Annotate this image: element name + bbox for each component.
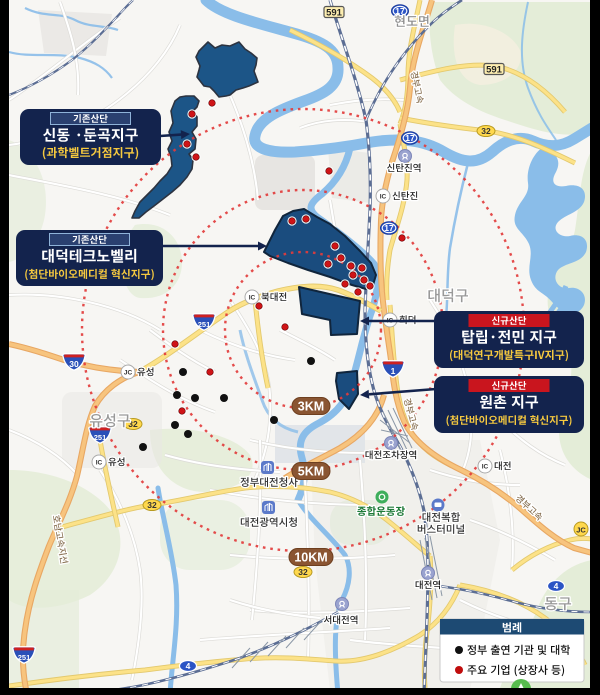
svg-text:10KM: 10KM bbox=[294, 551, 327, 565]
svg-text:IC: IC bbox=[380, 194, 387, 201]
svg-text:251: 251 bbox=[18, 653, 31, 662]
svg-text:IC: IC bbox=[249, 295, 256, 302]
svg-text:4: 4 bbox=[186, 661, 191, 671]
svg-text:JC: JC bbox=[124, 370, 133, 377]
svg-text:4: 4 bbox=[554, 581, 559, 591]
svg-text:17: 17 bbox=[384, 223, 394, 233]
svg-text:30: 30 bbox=[69, 359, 79, 369]
svg-text:3KM: 3KM bbox=[298, 400, 324, 414]
svg-text:IC: IC bbox=[482, 464, 489, 471]
svg-text:5KM: 5KM bbox=[298, 465, 324, 479]
svg-text:251: 251 bbox=[198, 320, 211, 329]
svg-text:32: 32 bbox=[298, 567, 308, 577]
svg-text:32: 32 bbox=[147, 500, 157, 510]
svg-text:591: 591 bbox=[326, 7, 343, 18]
svg-text:JC: JC bbox=[576, 525, 586, 534]
svg-text:1: 1 bbox=[391, 366, 396, 376]
svg-text:IC: IC bbox=[96, 460, 103, 467]
svg-text:32: 32 bbox=[481, 126, 491, 136]
svg-text:17: 17 bbox=[405, 133, 415, 143]
svg-text:591: 591 bbox=[486, 64, 503, 75]
svg-text:251: 251 bbox=[94, 433, 107, 442]
